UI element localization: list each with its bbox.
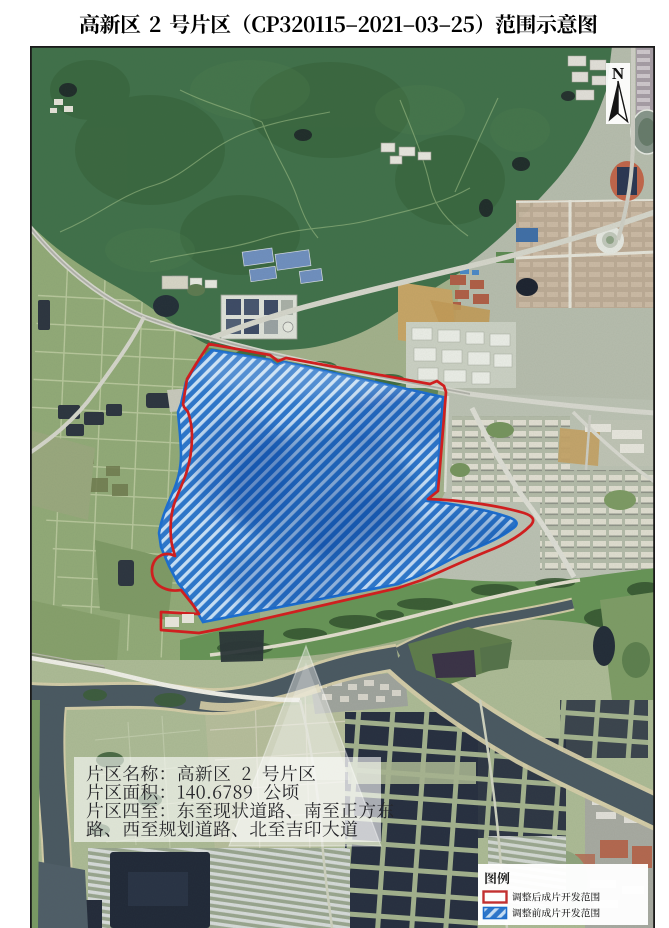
svg-text:N: N [612, 64, 625, 83]
